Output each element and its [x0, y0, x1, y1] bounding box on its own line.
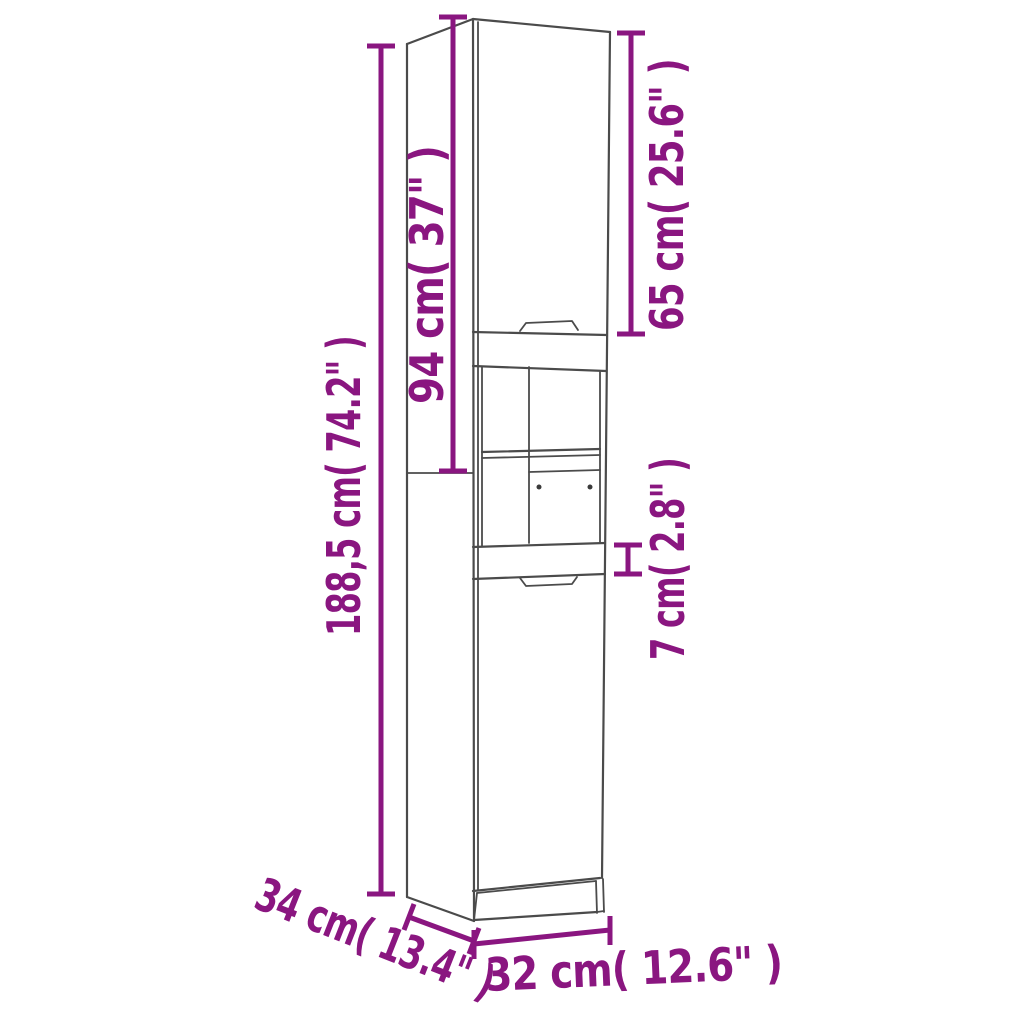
- dimension-line-width: [474, 930, 610, 944]
- dimension-label-overall-height: 188,5 cm( 74.2" ): [317, 336, 371, 636]
- back-panel-screw-hole-left: [537, 485, 542, 490]
- upper-rail-bottom-edge: [473, 366, 606, 371]
- dimension-upper-section-height: 94 cm( 37" ): [400, 17, 467, 471]
- lower-door-bottom-edge: [473, 878, 600, 891]
- dimension-upper-door-height: 65 cm( 25.6" ): [617, 33, 694, 334]
- lower-door-handle: [520, 577, 577, 586]
- dimension-label-width: 32 cm( 12.6" ): [484, 935, 783, 1002]
- dimension-label-upper-section-height: 94 cm( 37" ): [400, 146, 454, 404]
- dimension-middle-rail-height: 7 cm( 2.8" ): [614, 458, 695, 660]
- plinth-right-bottom-edge: [597, 911, 604, 912]
- plinth-right-inner-edge: [596, 881, 597, 913]
- cabinet-front-left-edge: [473, 19, 474, 921]
- dimension-depth: 34 cm( 13.4" ): [248, 867, 502, 1010]
- back-panel-top-edge: [529, 470, 600, 472]
- dimension-width: 32 cm( 12.6" ): [474, 916, 783, 1002]
- dimension-overall-height: 188,5 cm( 74.2" ): [317, 46, 395, 894]
- dimension-annotations: 188,5 cm( 74.2" ) 94 cm( 37" ) 65 cm( 25…: [248, 17, 783, 1010]
- cabinet-dimension-diagram: 188,5 cm( 74.2" ) 94 cm( 37" ) 65 cm( 25…: [0, 0, 1024, 1024]
- middle-shelf-front-edge: [482, 449, 600, 452]
- middle-rail-bottom-edge: [473, 574, 605, 579]
- middle-shelf-thickness-edge: [482, 455, 600, 458]
- cabinet-front-right-edge: [602, 32, 610, 878]
- plinth-right-outer-edge: [603, 879, 604, 912]
- middle-rail-top-edge: [473, 543, 605, 547]
- upper-door-bottom-edge: [473, 332, 607, 335]
- plinth-front-top-edge: [477, 881, 596, 893]
- dimension-label-upper-door-height: 65 cm( 25.6" ): [640, 59, 694, 331]
- cabinet-top-side-edge: [407, 19, 610, 44]
- back-panel-screw-hole-right: [588, 485, 593, 490]
- upper-door-handle: [520, 321, 578, 331]
- plinth-bottom-edge: [474, 912, 597, 920]
- dimension-label-middle-rail-height: 7 cm( 2.8" ): [641, 458, 695, 660]
- dimension-diagram-canvas: 188,5 cm( 74.2" ) 94 cm( 37" ) 65 cm( 25…: [0, 0, 1024, 1024]
